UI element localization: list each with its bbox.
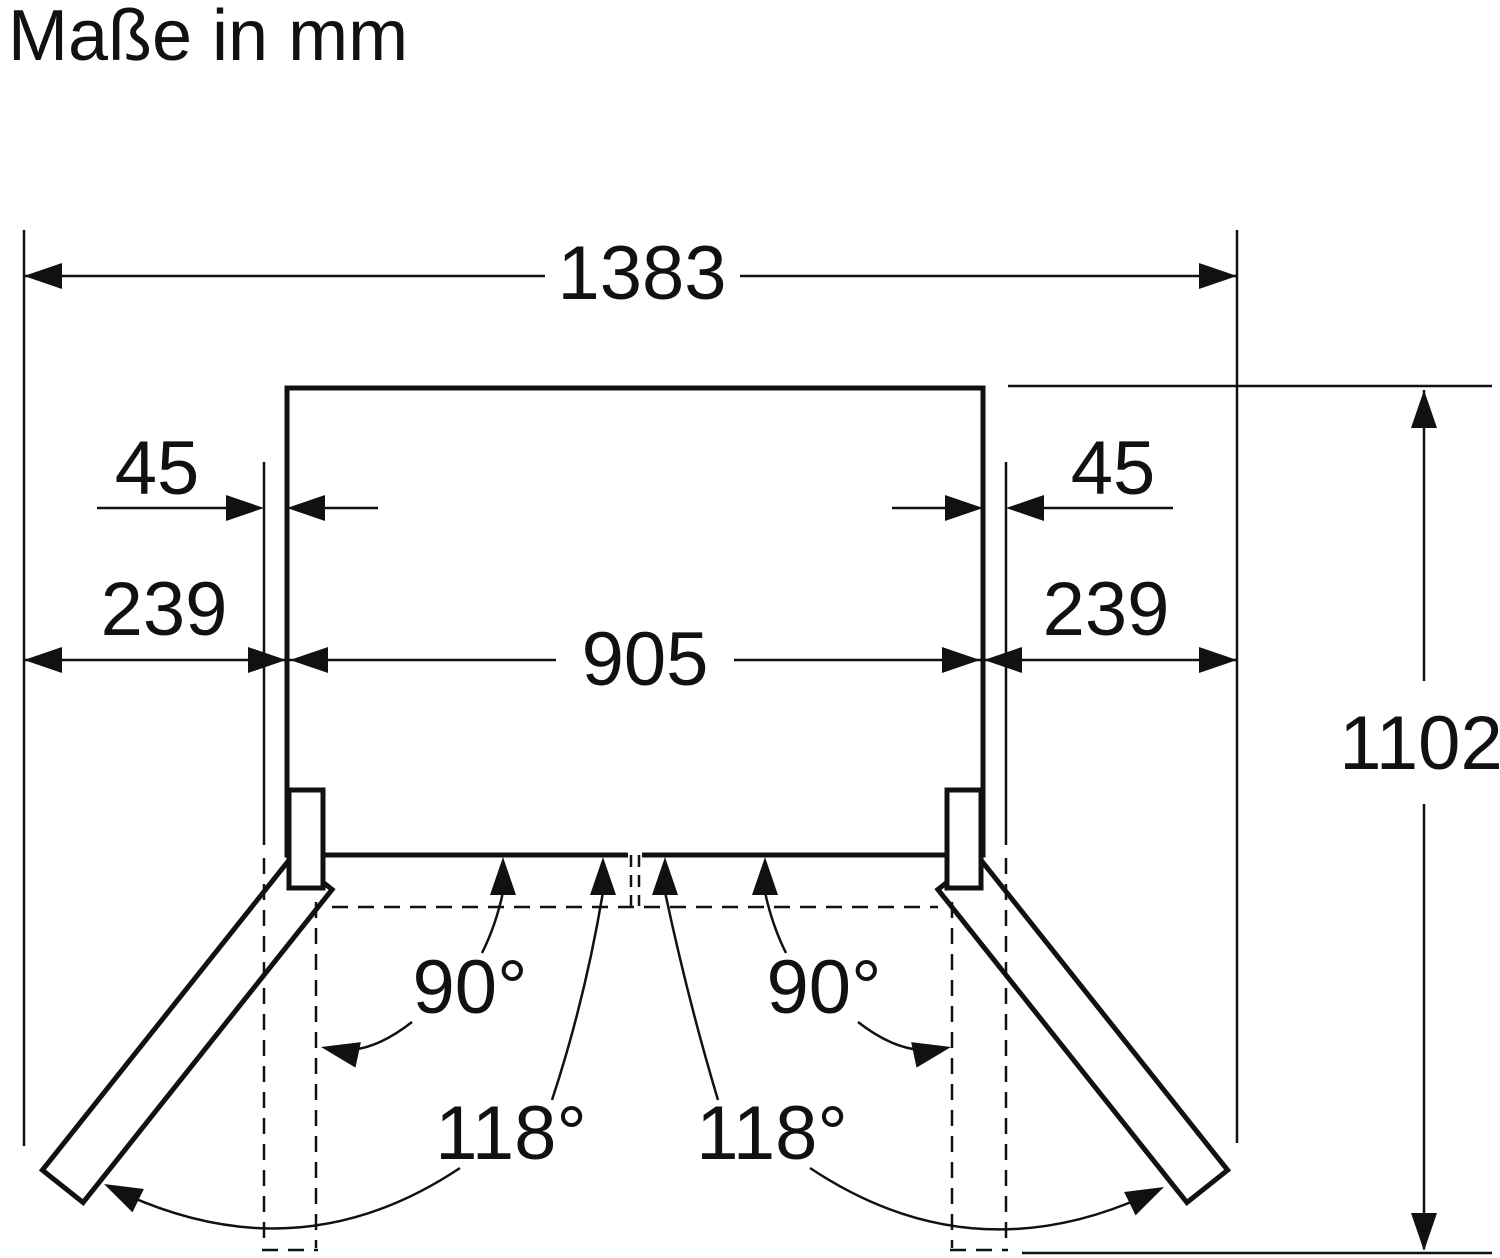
arrowhead	[226, 495, 264, 521]
leader-118-left	[552, 892, 603, 1100]
arrowhead	[652, 857, 678, 895]
arrowhead	[1199, 647, 1237, 673]
arc-118-left	[112, 1168, 460, 1229]
right-hinge-block	[947, 790, 981, 888]
dashed-door-positions	[262, 855, 1008, 1250]
dim-overall-width: 1383	[557, 231, 726, 316]
arrowhead	[1124, 1175, 1170, 1215]
angle-118-left: 118°	[435, 1091, 587, 1176]
angle-90-right: 90°	[767, 945, 882, 1030]
dimension-diagram: Maße in mm 1383 45 45 239 239 905 1102 9…	[0, 0, 1500, 1258]
leader-90-left	[482, 892, 503, 953]
arrowhead	[1199, 263, 1237, 289]
angle-90-left: 90°	[413, 945, 528, 1030]
arc-118-right	[810, 1168, 1156, 1229]
arrowhead	[1411, 390, 1437, 428]
arrowhead	[318, 1034, 361, 1067]
left-hinge-block	[289, 790, 323, 888]
leader-118-right	[665, 892, 718, 1100]
arrowhead	[984, 647, 1022, 673]
arrowhead	[1006, 495, 1044, 521]
dim-hinge-offset-left: 45	[115, 426, 200, 511]
dim-door-clearance-left: 239	[101, 567, 228, 652]
arrowhead	[24, 263, 62, 289]
diagram-title: Maße in mm	[8, 0, 408, 76]
right-door-open	[938, 857, 1228, 1202]
left-door-open	[42, 857, 332, 1202]
dim-overall-depth: 1102	[1339, 701, 1500, 786]
leader-90-right	[765, 892, 786, 953]
arrowhead	[911, 1034, 954, 1067]
arrowhead	[752, 857, 778, 895]
arrowhead	[490, 857, 516, 895]
dim-body-width: 905	[582, 617, 709, 702]
doors-open-118	[42, 857, 1227, 1202]
arrowhead	[1411, 1213, 1437, 1251]
angle-118-right: 118°	[696, 1091, 848, 1176]
dim-door-clearance-right: 239	[1043, 567, 1170, 652]
diagram-canvas: Maße in mm 1383 45 45 239 239 905 1102 9…	[0, 0, 1500, 1258]
arrowhead	[590, 857, 616, 895]
arrowhead	[248, 647, 286, 673]
arrowhead	[24, 647, 62, 673]
dim-hinge-offset-right: 45	[1071, 426, 1156, 511]
